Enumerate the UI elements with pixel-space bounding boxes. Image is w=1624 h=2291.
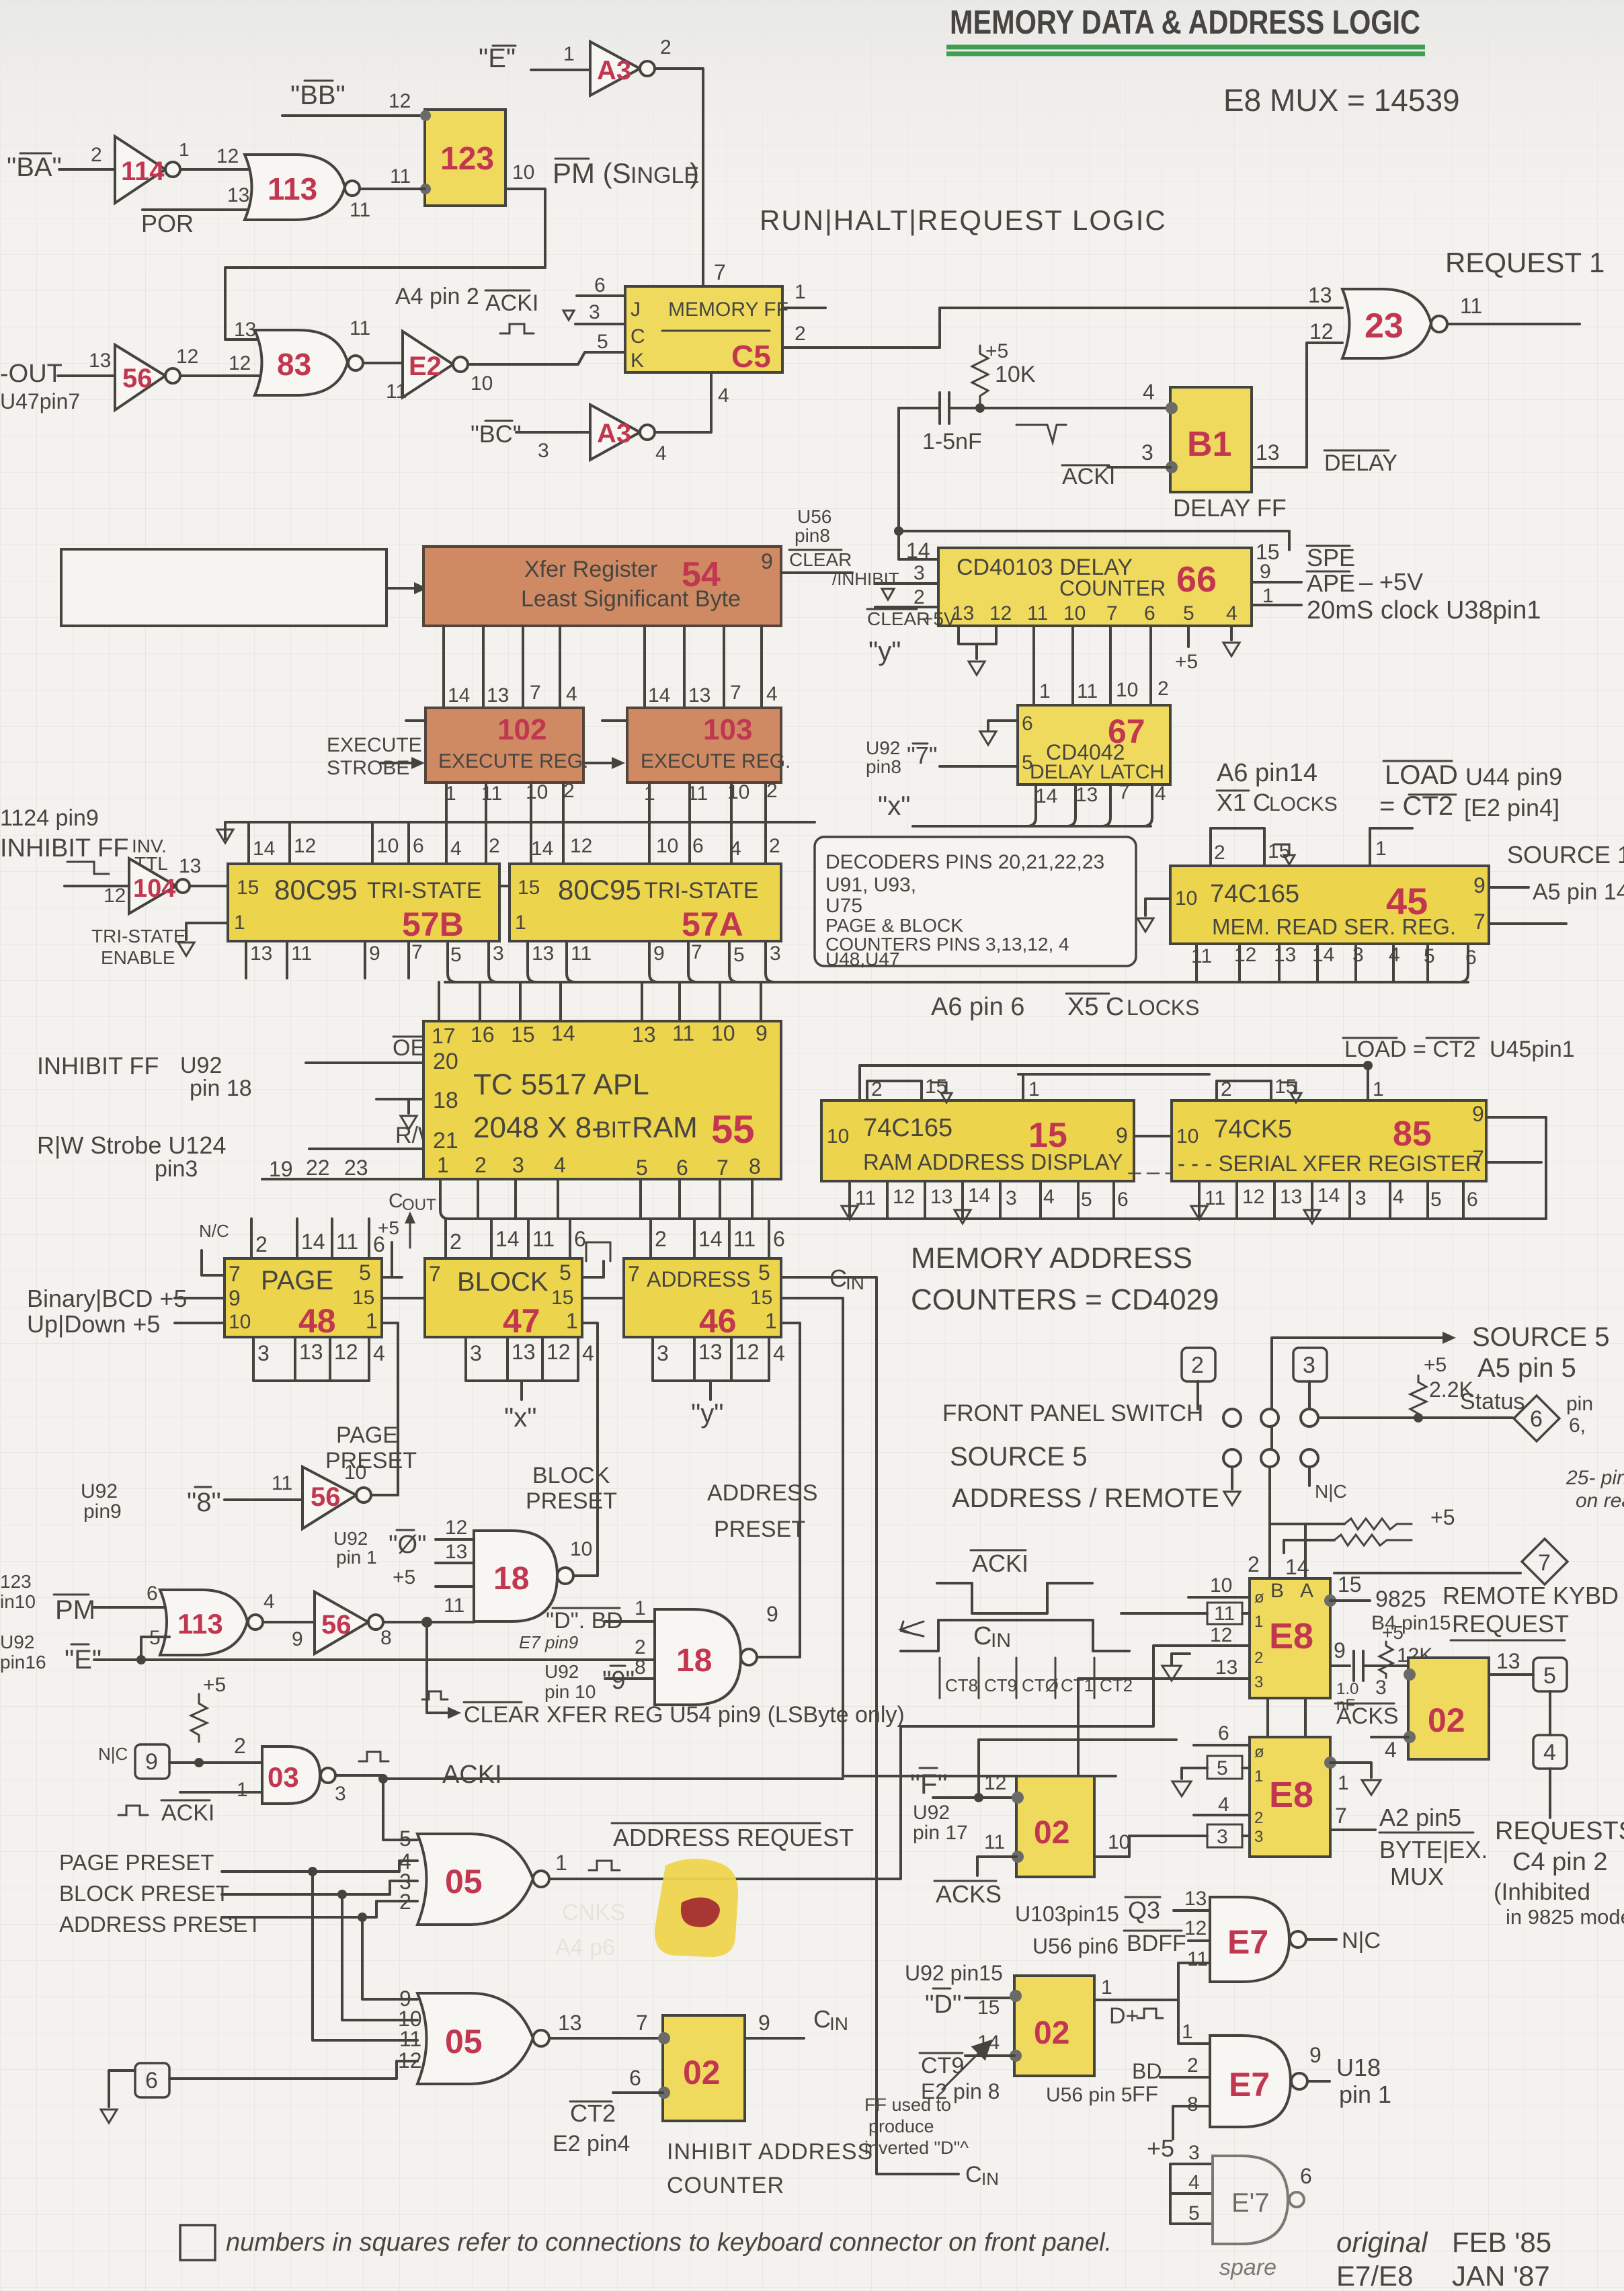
svg-text:U47pin7: U47pin7 bbox=[0, 389, 80, 413]
svg-text:6: 6 bbox=[629, 2066, 641, 2090]
svg-text:"x": "x" bbox=[504, 1403, 536, 1433]
svg-text:3: 3 bbox=[1254, 1673, 1263, 1691]
svg-text:"F": "F" bbox=[910, 1768, 947, 1800]
svg-text:17: 17 bbox=[432, 1024, 456, 1048]
svg-text:TRI-STATE: TRI-STATE bbox=[91, 926, 186, 947]
svg-text:20: 20 bbox=[433, 1049, 458, 1074]
svg-text:5: 5 bbox=[1183, 602, 1194, 625]
svg-text:CLEAR XFER REG U54 pin9 (LSB: CLEAR XFER REG U54 pin9 (LSByte only) bbox=[464, 1702, 905, 1728]
svg-text:1-5nF: 1-5nF bbox=[922, 429, 982, 454]
svg-text:IN: IN bbox=[981, 2169, 999, 2189]
svg-text:MEMORY DATA & ADDRESS LOGIC: MEMORY DATA & ADDRESS LOGIC bbox=[950, 3, 1420, 41]
svg-text:14: 14 bbox=[551, 1021, 575, 1045]
svg-text:TC 5517 APL: TC 5517 APL bbox=[473, 1068, 649, 1101]
svg-text:C: C bbox=[973, 1622, 991, 1650]
svg-text:CLEAR: CLEAR bbox=[867, 608, 930, 629]
svg-text:10: 10 bbox=[526, 781, 548, 803]
svg-text:BDFF: BDFF bbox=[1127, 1931, 1186, 1956]
svg-text:6: 6 bbox=[1218, 1722, 1229, 1744]
svg-text:13: 13 bbox=[234, 319, 256, 341]
svg-text:U45pin1: U45pin1 bbox=[1490, 1037, 1575, 1062]
svg-text:3: 3 bbox=[470, 1341, 482, 1365]
svg-text:ø: ø bbox=[1254, 1589, 1264, 1607]
svg-text:23: 23 bbox=[344, 1156, 368, 1180]
svg-text:N/C: N/C bbox=[199, 1221, 229, 1241]
svg-text:15: 15 bbox=[511, 1022, 535, 1047]
svg-text:47: 47 bbox=[503, 1302, 540, 1340]
svg-text:in 9825 mode): in 9825 mode) bbox=[1506, 1905, 1624, 1929]
svg-text:11: 11 bbox=[350, 199, 370, 221]
svg-text:7: 7 bbox=[636, 2011, 648, 2035]
svg-text:"8": "8" bbox=[187, 1488, 221, 1517]
svg-text:14: 14 bbox=[1035, 785, 1057, 807]
svg-text:114: 114 bbox=[121, 157, 165, 186]
svg-text:22: 22 bbox=[306, 1156, 330, 1180]
svg-text:pin 10: pin 10 bbox=[544, 1681, 596, 1702]
svg-text:9: 9 bbox=[369, 942, 380, 965]
svg-text:10: 10 bbox=[827, 1125, 849, 1148]
svg-text:9: 9 bbox=[1334, 1638, 1346, 1662]
svg-text:14: 14 bbox=[906, 538, 930, 563]
svg-text:10: 10 bbox=[471, 372, 493, 395]
svg-text:+5: +5 bbox=[1175, 651, 1198, 673]
svg-text:55: 55 bbox=[711, 1108, 755, 1152]
svg-text:6: 6 bbox=[1300, 2164, 1312, 2188]
svg-text:11: 11 bbox=[399, 2027, 421, 2051]
svg-text:MUX: MUX bbox=[1390, 1863, 1444, 1890]
svg-text:TRI-STATE: TRI-STATE bbox=[367, 878, 482, 903]
svg-text:14: 14 bbox=[648, 684, 670, 707]
svg-text:spare: spare bbox=[1219, 2255, 1276, 2280]
svg-text:2: 2 bbox=[1254, 1809, 1263, 1827]
svg-text:2: 2 bbox=[475, 1153, 487, 1177]
svg-text:13: 13 bbox=[532, 942, 554, 965]
svg-text:2: 2 bbox=[1254, 1649, 1263, 1667]
svg-text:7: 7 bbox=[1106, 602, 1118, 625]
svg-text:2: 2 bbox=[489, 835, 500, 857]
svg-text:12: 12 bbox=[570, 835, 592, 857]
svg-text:2: 2 bbox=[1187, 2054, 1199, 2077]
svg-text:inverted "D"^: inverted "D"^ bbox=[864, 2138, 969, 2158]
svg-text:REQUESTS: REQUESTS bbox=[1495, 1817, 1624, 1845]
svg-text:9: 9 bbox=[1116, 1123, 1128, 1148]
svg-text:6: 6 bbox=[1530, 1406, 1543, 1432]
svg-text:1: 1 bbox=[1028, 1078, 1040, 1100]
svg-text:25- pin D conn: 25- pin D conn bbox=[1566, 1467, 1624, 1489]
svg-text:8: 8 bbox=[380, 1627, 392, 1649]
svg-text:ENABLE: ENABLE bbox=[101, 947, 175, 968]
svg-text:on rear panel: on rear panel bbox=[1576, 1490, 1624, 1512]
svg-text:48: 48 bbox=[298, 1302, 336, 1340]
svg-text:15: 15 bbox=[750, 1287, 772, 1309]
svg-text:12: 12 bbox=[1210, 1624, 1232, 1646]
svg-text:74CK5: 74CK5 bbox=[1214, 1115, 1292, 1143]
svg-text:1.0: 1.0 bbox=[1336, 1680, 1358, 1698]
svg-text:4: 4 bbox=[655, 442, 667, 465]
svg-text:C: C bbox=[631, 325, 645, 348]
svg-text:10: 10 bbox=[229, 1311, 251, 1333]
svg-text:23: 23 bbox=[1365, 307, 1404, 346]
svg-text:PAGE: PAGE bbox=[336, 1422, 398, 1448]
svg-text:"Ø": "Ø" bbox=[389, 1531, 427, 1559]
svg-text:LOCKS: LOCKS bbox=[1269, 793, 1338, 815]
svg-text:1: 1 bbox=[1373, 1078, 1384, 1100]
svg-text:13: 13 bbox=[930, 1186, 952, 1208]
svg-text:U92: U92 bbox=[180, 1053, 222, 1078]
svg-text:9: 9 bbox=[1472, 1102, 1484, 1126]
svg-text:14: 14 bbox=[1317, 1184, 1340, 1207]
svg-text:4: 4 bbox=[718, 385, 729, 407]
svg-text:6: 6 bbox=[413, 835, 424, 857]
svg-text:BLOCK PRESET: BLOCK PRESET bbox=[59, 1881, 229, 1906]
svg-text:X1 C: X1 C bbox=[1217, 789, 1270, 816]
svg-text:12: 12 bbox=[294, 835, 316, 857]
svg-text:66: 66 bbox=[1176, 559, 1217, 600]
svg-text:5: 5 bbox=[450, 944, 462, 966]
svg-text:03: 03 bbox=[268, 1761, 299, 1793]
svg-text:13: 13 bbox=[445, 1541, 467, 1563]
svg-text:9: 9 bbox=[1309, 2043, 1322, 2067]
svg-text:14: 14 bbox=[698, 1227, 723, 1251]
svg-text:6: 6 bbox=[147, 1582, 158, 1605]
svg-text:11: 11 bbox=[1460, 294, 1482, 318]
svg-text:MEMORY ADDRESS: MEMORY ADDRESS bbox=[911, 1242, 1192, 1275]
svg-text:U56: U56 bbox=[797, 506, 831, 527]
svg-text:Status: Status bbox=[1460, 1389, 1525, 1414]
svg-text:U92: U92 bbox=[544, 1661, 579, 1682]
svg-text:7: 7 bbox=[714, 260, 726, 284]
svg-text:9: 9 bbox=[758, 2011, 770, 2035]
svg-text:E8: E8 bbox=[1269, 1616, 1313, 1656]
svg-text:13: 13 bbox=[1280, 1186, 1302, 1208]
svg-text:1: 1 bbox=[179, 139, 190, 160]
svg-text:13: 13 bbox=[632, 1022, 656, 1047]
svg-text:13: 13 bbox=[1496, 1649, 1520, 1673]
svg-text:BIT: BIT bbox=[596, 1117, 631, 1143]
svg-text:original: original bbox=[1336, 2226, 1428, 2258]
svg-text:7: 7 bbox=[229, 1262, 241, 1286]
svg-text:14: 14 bbox=[1312, 944, 1334, 966]
svg-text:13: 13 bbox=[89, 350, 111, 372]
svg-text:4: 4 bbox=[1188, 2171, 1200, 2194]
svg-text:C: C bbox=[829, 1264, 847, 1292]
svg-text:2: 2 bbox=[660, 36, 672, 58]
svg-text:74C165: 74C165 bbox=[1210, 880, 1299, 908]
svg-text:123: 123 bbox=[440, 141, 494, 177]
svg-text:5: 5 bbox=[399, 1826, 411, 1851]
svg-text:3: 3 bbox=[335, 1783, 346, 1805]
svg-text:"BB": "BB" bbox=[290, 81, 346, 110]
svg-text:A: A bbox=[1300, 1580, 1313, 1602]
svg-text:A6 pin 6: A6 pin 6 bbox=[931, 993, 1024, 1021]
svg-text:ACKS: ACKS bbox=[1336, 1703, 1399, 1729]
svg-text:ACKS: ACKS bbox=[936, 1880, 1002, 1908]
svg-text:10K: 10K bbox=[995, 362, 1036, 387]
svg-text:K: K bbox=[631, 350, 644, 372]
svg-text:1: 1 bbox=[366, 1309, 378, 1333]
svg-text:18: 18 bbox=[493, 1561, 529, 1597]
svg-text:13: 13 bbox=[1308, 283, 1332, 307]
svg-text:11: 11 bbox=[336, 1230, 358, 1254]
svg-text:2: 2 bbox=[91, 144, 102, 166]
svg-text:3: 3 bbox=[1375, 1677, 1387, 1699]
svg-text:1: 1 bbox=[555, 1851, 567, 1875]
svg-text:BD: BD bbox=[1132, 2059, 1162, 2083]
svg-text:7: 7 bbox=[691, 941, 702, 963]
svg-text:13: 13 bbox=[698, 1340, 723, 1364]
svg-text:1: 1 bbox=[515, 912, 526, 934]
svg-text:05: 05 bbox=[445, 2023, 483, 2060]
svg-text:4: 4 bbox=[263, 1591, 275, 1613]
svg-text:PRESET: PRESET bbox=[325, 1448, 417, 1474]
svg-text:N|C: N|C bbox=[1315, 1481, 1347, 1502]
svg-text:02: 02 bbox=[1034, 1815, 1069, 1851]
svg-text:13: 13 bbox=[299, 1340, 323, 1364]
svg-text:13: 13 bbox=[512, 1340, 536, 1364]
svg-text:1: 1 bbox=[1254, 1613, 1263, 1631]
svg-text:DELAY FF: DELAY FF bbox=[1173, 494, 1287, 522]
svg-text:CLEAR: CLEAR bbox=[789, 549, 852, 570]
svg-text:E7: E7 bbox=[1229, 2066, 1270, 2103]
svg-text:IN: IN bbox=[991, 1630, 1011, 1652]
svg-text:ø: ø bbox=[1254, 1743, 1264, 1761]
svg-text:11: 11 bbox=[1214, 1603, 1235, 1625]
svg-text:13: 13 bbox=[1256, 440, 1280, 465]
svg-text:E2 pin4: E2 pin4 bbox=[553, 2131, 630, 2157]
svg-text:7: 7 bbox=[717, 1156, 729, 1180]
svg-text:U48,U47: U48,U47 bbox=[825, 949, 900, 969]
svg-text:13: 13 bbox=[1184, 1888, 1207, 1910]
svg-text:PRESET: PRESET bbox=[714, 1517, 805, 1542]
svg-text:6: 6 bbox=[692, 835, 704, 857]
svg-text:MEM. READ SER. REG.: MEM. READ SER. REG. bbox=[1212, 914, 1456, 939]
svg-text:Xfer Register: Xfer Register bbox=[524, 557, 657, 582]
svg-text:pin 1: pin 1 bbox=[1339, 2081, 1391, 2108]
svg-text:10: 10 bbox=[1176, 1125, 1199, 1148]
svg-text:9: 9 bbox=[766, 1602, 778, 1626]
svg-text:6,: 6, bbox=[1569, 1414, 1586, 1437]
svg-text:E8 MUX = 14539: E8 MUX = 14539 bbox=[1223, 83, 1460, 118]
svg-text:15: 15 bbox=[925, 1076, 947, 1098]
svg-text:LOAD: LOAD bbox=[1385, 760, 1458, 790]
svg-text:9825: 9825 bbox=[1375, 1586, 1426, 1612]
svg-text:11: 11 bbox=[386, 380, 407, 403]
svg-text:1: 1 bbox=[234, 912, 245, 934]
svg-text:IN: IN bbox=[829, 2013, 848, 2034]
svg-text:CT2: CT2 bbox=[570, 2099, 616, 2127]
svg-text:3: 3 bbox=[1188, 2142, 1200, 2164]
svg-text:1: 1 bbox=[1375, 838, 1387, 860]
svg-text:9: 9 bbox=[653, 942, 665, 965]
svg-text:12: 12 bbox=[216, 145, 239, 167]
svg-text:"BA": "BA" bbox=[7, 153, 62, 182]
svg-text:7: 7 bbox=[530, 682, 541, 704]
svg-text:123: 123 bbox=[0, 1571, 32, 1592]
svg-text:12: 12 bbox=[1242, 1186, 1264, 1208]
svg-text:56: 56 bbox=[122, 364, 153, 393]
svg-text:5: 5 bbox=[1188, 2202, 1200, 2224]
svg-text:5: 5 bbox=[1217, 1757, 1228, 1779]
svg-text:11: 11 bbox=[984, 1831, 1005, 1853]
svg-text:1: 1 bbox=[765, 1309, 777, 1333]
svg-text:2: 2 bbox=[399, 1890, 411, 1914]
svg-text:11: 11 bbox=[1077, 680, 1098, 702]
svg-text:11: 11 bbox=[733, 1227, 756, 1251]
svg-text:DELAY LATCH: DELAY LATCH bbox=[1030, 761, 1164, 783]
svg-text:8: 8 bbox=[749, 1154, 761, 1178]
svg-text:2: 2 bbox=[635, 1636, 646, 1658]
svg-text:80C95: 80C95 bbox=[274, 874, 358, 906]
svg-text:104: 104 bbox=[133, 875, 175, 903]
svg-text:STROBE: STROBE bbox=[327, 757, 409, 779]
svg-text:1: 1 bbox=[1101, 1976, 1112, 1999]
svg-text:3: 3 bbox=[1217, 1826, 1228, 1848]
svg-text:PRESET: PRESET bbox=[526, 1488, 617, 1514]
svg-text:2: 2 bbox=[1248, 1552, 1260, 1576]
svg-text:15: 15 bbox=[1274, 1076, 1297, 1098]
svg-text:5: 5 bbox=[636, 1156, 648, 1180]
svg-text:12: 12 bbox=[735, 1340, 760, 1364]
svg-text:RAM: RAM bbox=[632, 1111, 698, 1144]
svg-text:U18: U18 bbox=[1336, 2054, 1381, 2081]
svg-text:7: 7 bbox=[411, 941, 423, 963]
svg-text:4: 4 bbox=[1393, 1186, 1404, 1208]
svg-text:CT9: CT9 bbox=[984, 1675, 1017, 1695]
svg-text:11: 11 bbox=[1027, 602, 1048, 625]
svg-text:5: 5 bbox=[359, 1260, 371, 1285]
svg-text:5: 5 bbox=[597, 331, 608, 353]
svg-text:4: 4 bbox=[1218, 1794, 1229, 1816]
svg-text:2: 2 bbox=[766, 780, 778, 802]
svg-text:ACKI: ACKI bbox=[1062, 464, 1115, 489]
svg-text:+5: +5 bbox=[1382, 1622, 1404, 1643]
svg-text:7: 7 bbox=[1538, 1550, 1551, 1576]
svg-text:C4 pin 2: C4 pin 2 bbox=[1512, 1848, 1608, 1876]
svg-text:11: 11 bbox=[532, 1227, 555, 1251]
svg-text:ADDRESS: ADDRESS bbox=[647, 1267, 751, 1291]
svg-text:11: 11 bbox=[390, 165, 411, 188]
svg-text:13: 13 bbox=[1075, 784, 1098, 806]
svg-text:PM (S: PM (S bbox=[553, 157, 631, 189]
svg-text:2: 2 bbox=[1158, 678, 1169, 700]
svg-text:OUT: OUT bbox=[402, 1196, 436, 1214]
svg-text:12: 12 bbox=[989, 602, 1012, 625]
svg-text:+5: +5 bbox=[1430, 1505, 1455, 1529]
svg-text:E7 pin9: E7 pin9 bbox=[519, 1632, 578, 1652]
svg-text:5: 5 bbox=[1081, 1189, 1092, 1211]
svg-text:12: 12 bbox=[389, 90, 411, 112]
svg-text:ADDRESS PRESET: ADDRESS PRESET bbox=[59, 1912, 261, 1937]
svg-text:A4 pin 2: A4 pin 2 bbox=[395, 284, 479, 309]
svg-text:14: 14 bbox=[253, 838, 275, 860]
svg-text:ACKI: ACKI bbox=[485, 290, 538, 316]
svg-text:6: 6 bbox=[373, 1232, 385, 1256]
svg-text:"E": "E" bbox=[479, 44, 516, 73]
svg-text:FRONT PANEL SWITCH: FRONT PANEL SWITCH bbox=[942, 1400, 1203, 1426]
svg-text:INHIBIT FF: INHIBIT FF bbox=[0, 834, 128, 862]
svg-text:ACKI: ACKI bbox=[442, 1761, 502, 1789]
svg-text:C: C bbox=[965, 2162, 982, 2187]
svg-text:U103pin15: U103pin15 bbox=[1015, 1902, 1119, 1926]
svg-text:DELAY: DELAY bbox=[1324, 450, 1397, 476]
svg-text:5: 5 bbox=[559, 1260, 571, 1285]
svg-text:EXECUTE REG.: EXECUTE REG. bbox=[438, 750, 588, 772]
svg-text:4: 4 bbox=[773, 1341, 785, 1365]
svg-text:56: 56 bbox=[311, 1482, 341, 1512]
svg-text:13: 13 bbox=[688, 684, 710, 707]
svg-text:4: 4 bbox=[730, 838, 741, 860]
svg-text:FF: FF bbox=[1132, 2082, 1158, 2106]
svg-text:LOAD = CT2: LOAD = CT2 bbox=[1344, 1037, 1476, 1062]
svg-text:11: 11 bbox=[672, 1021, 694, 1045]
svg-text:3: 3 bbox=[1355, 1187, 1367, 1209]
svg-text:11: 11 bbox=[272, 1472, 292, 1494]
svg-text:2: 2 bbox=[563, 780, 575, 802]
svg-text:1: 1 bbox=[563, 43, 575, 65]
svg-text:9: 9 bbox=[1260, 561, 1271, 583]
svg-text:U92: U92 bbox=[81, 1480, 118, 1502]
svg-text:CNKS: CNKS bbox=[562, 1900, 625, 1925]
svg-text:11: 11 bbox=[571, 942, 592, 965]
svg-text:ACKI: ACKI bbox=[972, 1550, 1028, 1577]
svg-text:10: 10 bbox=[376, 835, 399, 857]
svg-text:12: 12 bbox=[104, 885, 126, 907]
svg-text:INHIBIT ADDRESS: INHIBIT ADDRESS bbox=[667, 2139, 873, 2165]
svg-text:12: 12 bbox=[445, 1517, 467, 1539]
svg-text:103: 103 bbox=[703, 713, 752, 746]
svg-text:20mS clock U38pin1: 20mS clock U38pin1 bbox=[1307, 596, 1541, 625]
svg-text:13: 13 bbox=[1215, 1656, 1237, 1679]
svg-text:15: 15 bbox=[977, 1997, 1000, 2019]
svg-text:14: 14 bbox=[968, 1184, 990, 1207]
svg-text:A5 pin 14: A5 pin 14 bbox=[1533, 879, 1624, 905]
svg-text:14: 14 bbox=[448, 684, 470, 707]
svg-text:6: 6 bbox=[145, 2068, 158, 2093]
svg-text:10: 10 bbox=[656, 835, 678, 857]
svg-text:6: 6 bbox=[676, 1156, 688, 1180]
svg-text:N|C: N|C bbox=[98, 1744, 128, 1764]
svg-text:10: 10 bbox=[1175, 887, 1197, 910]
svg-text:U56 pin 5: U56 pin 5 bbox=[1046, 2084, 1132, 2106]
svg-text:numbers in squares refer to co: numbers in squares refer to connections … bbox=[226, 2228, 1112, 2257]
svg-text:"x": "x" bbox=[878, 791, 910, 821]
svg-text:05: 05 bbox=[445, 1863, 483, 1900]
svg-text:4: 4 bbox=[554, 1153, 566, 1177]
svg-text:A2 pin5: A2 pin5 bbox=[1379, 1804, 1461, 1831]
svg-text:(Inhibited: (Inhibited bbox=[1494, 1879, 1590, 1905]
svg-text:1: 1 bbox=[1262, 585, 1274, 607]
svg-text:4: 4 bbox=[766, 683, 778, 705]
svg-text:2: 2 bbox=[450, 1230, 462, 1254]
svg-text:2: 2 bbox=[255, 1232, 268, 1256]
svg-text:7: 7 bbox=[1473, 910, 1486, 934]
svg-text:+5: +5 bbox=[1424, 1354, 1447, 1376]
svg-text:OE: OE bbox=[393, 1035, 425, 1061]
svg-text:102: 102 bbox=[497, 713, 546, 746]
svg-text:57B: 57B bbox=[402, 906, 464, 943]
svg-text:113: 113 bbox=[268, 171, 317, 206]
svg-text:15: 15 bbox=[1338, 1572, 1362, 1597]
svg-text:5: 5 bbox=[1022, 752, 1033, 774]
svg-text:3: 3 bbox=[913, 562, 925, 584]
svg-text:13: 13 bbox=[487, 684, 509, 707]
svg-text:pin16: pin16 bbox=[0, 1652, 46, 1673]
svg-text:pin 18: pin 18 bbox=[190, 1076, 252, 1101]
svg-text:BLOCK: BLOCK bbox=[457, 1267, 549, 1297]
svg-text:3: 3 bbox=[1141, 440, 1153, 465]
svg-text:3: 3 bbox=[257, 1341, 270, 1365]
svg-text:21: 21 bbox=[433, 1128, 458, 1154]
